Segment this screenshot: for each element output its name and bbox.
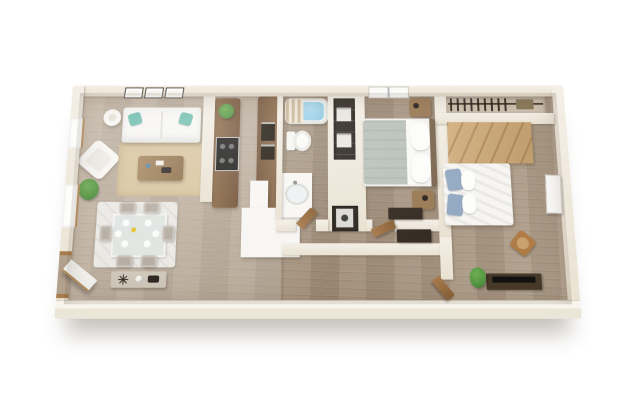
floorplan-stage	[0, 0, 640, 401]
floorplan-3d-scene	[54, 86, 581, 319]
lighting-sheen	[64, 93, 572, 304]
floorplan	[54, 86, 581, 319]
